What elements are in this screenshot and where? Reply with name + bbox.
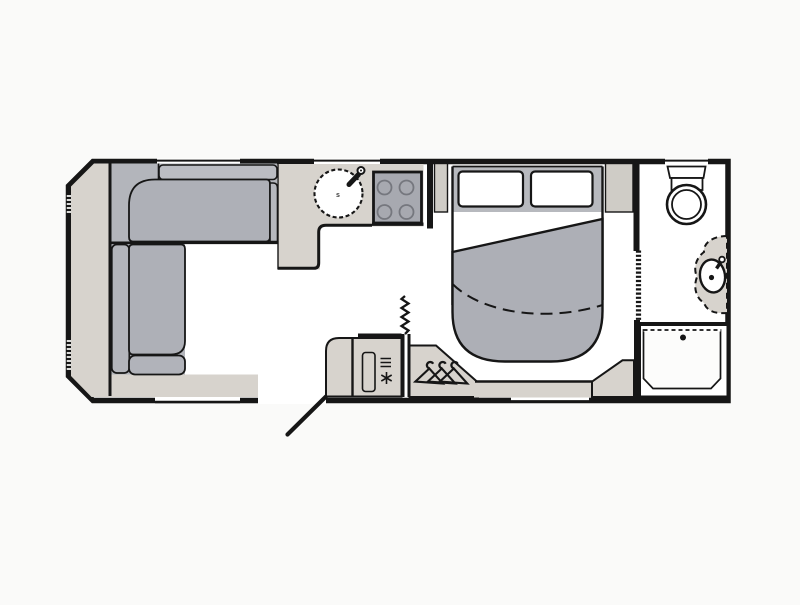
svg-text:s: s (336, 192, 340, 199)
